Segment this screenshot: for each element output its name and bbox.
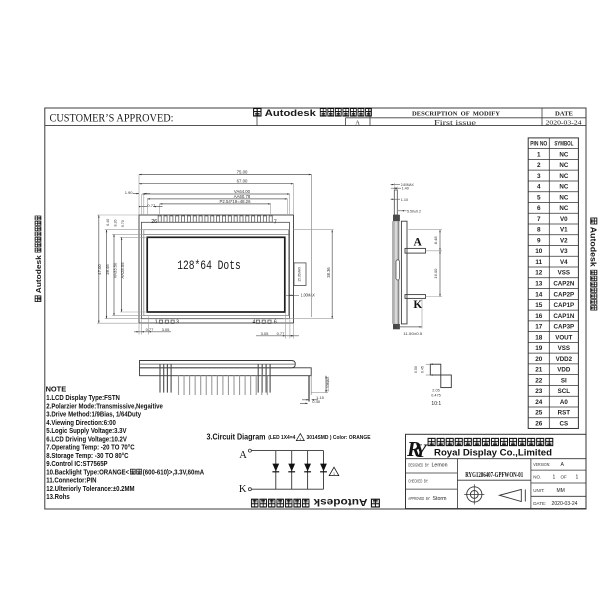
svg-text:26: 26: [535, 420, 543, 427]
svg-text:5: 5: [537, 194, 541, 201]
svg-text:SYMBOL: SYMBOL: [554, 141, 573, 148]
svg-text:7: 7: [274, 220, 277, 226]
svg-text:Autodesk: Autodesk: [313, 496, 367, 507]
svg-text:2020-03-24: 2020-03-24: [552, 501, 578, 507]
svg-text:67.00: 67.00: [237, 179, 248, 184]
svg-text:CAP2N: CAP2N: [553, 281, 575, 288]
svg-text:2020-03-24: 2020-03-24: [546, 120, 582, 126]
svg-text:VOUT: VOUT: [555, 334, 572, 341]
svg-text:1.LCD Display Type:FSTN: 1.LCD Display Type:FSTN: [46, 395, 120, 403]
svg-text:CUSTOMER’S APPROVED:: CUSTOMER’S APPROVED:: [50, 112, 174, 124]
svg-text:A: A: [239, 450, 247, 461]
svg-text:V0: V0: [560, 216, 568, 223]
svg-text:3.Drive Method:1/9Bias, 1/64Du: 3.Drive Method:1/9Bias, 1/64Duty: [46, 411, 141, 419]
svg-text:Autodesk: Autodesk: [34, 254, 43, 293]
svg-text:9: 9: [537, 237, 541, 244]
svg-text:47.00: 47.00: [97, 264, 102, 275]
svg-text:V4: V4: [560, 259, 568, 266]
svg-text:26: 26: [151, 219, 157, 225]
svg-text:NC: NC: [559, 205, 568, 212]
svg-text:3.05: 3.05: [162, 327, 171, 332]
svg-text:8.48: 8.48: [433, 236, 438, 245]
svg-text:15.35MAX: 15.35MAX: [297, 266, 301, 282]
svg-text:P2.54*19=48.26: P2.54*19=48.26: [220, 199, 252, 204]
svg-text:1: 1: [155, 320, 158, 326]
svg-text:38.36: 38.36: [326, 267, 331, 278]
svg-text:4: 4: [537, 184, 541, 191]
svg-text:128*64 Dots: 128*64 Dots: [177, 259, 241, 274]
svg-text:3: 3: [537, 173, 541, 180]
svg-text:1: 1: [537, 151, 541, 158]
svg-text:NC: NC: [559, 194, 568, 201]
svg-text:CHECKED BY:: CHECKED BY:: [408, 478, 428, 483]
svg-text:1.00MAX: 1.00MAX: [301, 293, 315, 298]
svg-text:3: 3: [176, 320, 179, 326]
svg-text:NC: NC: [559, 184, 568, 191]
svg-text:6.40: 6.40: [106, 219, 110, 226]
svg-text:(LED 1X4=4: (LED 1X4=4: [268, 435, 295, 441]
svg-text:UNIT:: UNIT:: [533, 488, 544, 493]
svg-text:0.77: 0.77: [147, 203, 156, 208]
svg-text:3.Circuit Diagram: 3.Circuit Diagram: [207, 433, 266, 442]
svg-text:2.05: 2.05: [432, 388, 439, 392]
svg-text:NOTE: NOTE: [46, 385, 67, 394]
svg-text:10.Backlight Type:ORANGE<: 10.Backlight Type:ORANGE<: [46, 469, 129, 477]
svg-text:First issue: First issue: [434, 119, 476, 127]
svg-text:18: 18: [535, 334, 543, 341]
svg-text:12: 12: [535, 270, 543, 277]
svg-text:11.50±0.5: 11.50±0.5: [403, 331, 423, 336]
svg-text:9.Control IC:ST7565P: 9.Control IC:ST7565P: [46, 461, 108, 469]
svg-text:NC: NC: [559, 151, 568, 158]
svg-text:1.90: 1.90: [125, 190, 134, 195]
svg-text:6.LCD Driving Voltage:10.2V: 6.LCD Driving Voltage:10.2V: [46, 436, 127, 444]
svg-text:0.77: 0.77: [277, 331, 286, 336]
svg-text:Storm: Storm: [433, 496, 447, 502]
svg-text:13: 13: [535, 281, 543, 288]
svg-text:0.50: 0.50: [414, 366, 418, 373]
svg-text:6: 6: [274, 320, 277, 326]
svg-text:22: 22: [535, 377, 543, 384]
svg-text:7: 7: [537, 216, 541, 223]
svg-text:39.46: 39.46: [105, 264, 110, 275]
svg-text:A: A: [355, 120, 360, 127]
svg-text:24: 24: [535, 399, 543, 406]
svg-text:VSS: VSS: [558, 345, 570, 352]
svg-text:8: 8: [537, 227, 541, 234]
svg-text:K: K: [239, 484, 247, 495]
svg-text:RST: RST: [558, 410, 571, 417]
svg-text:Autodesk: Autodesk: [589, 227, 598, 268]
svg-text:AA28.55: AA28.55: [120, 262, 125, 279]
svg-text:VDD2: VDD2: [556, 356, 573, 363]
svg-text:1.40: 1.40: [402, 187, 409, 191]
svg-text:SCL: SCL: [558, 388, 571, 395]
svg-text:VDD: VDD: [557, 367, 571, 374]
svg-text:CAP3P: CAP3P: [554, 324, 575, 331]
svg-text:8.26: 8.26: [113, 220, 117, 227]
svg-text:Royal Display Co.,Limited: Royal Display Co.,Limited: [434, 447, 552, 458]
svg-text:APPROVED BY:: APPROVED BY:: [408, 496, 430, 501]
svg-text:DATE: DATE: [555, 111, 573, 118]
svg-text:DESIGNED BY:: DESIGNED BY:: [408, 462, 429, 467]
svg-text:NC: NC: [559, 162, 568, 169]
svg-text:VA33.50: VA33.50: [112, 262, 117, 278]
svg-text:SI: SI: [561, 377, 567, 384]
svg-text:25: 25: [535, 410, 543, 417]
svg-text:14: 14: [535, 291, 543, 298]
svg-text:DESCRIPTION OF MODIFY: DESCRIPTION OF MODIFY: [412, 111, 501, 118]
svg-text:7.Operating Temp: -20 TO 70°C: 7.Operating Temp: -20 TO 70°C: [46, 443, 134, 452]
svg-text:3.05: 3.05: [261, 331, 270, 336]
svg-text:CAP1N: CAP1N: [553, 313, 575, 320]
svg-text:CAP1P: CAP1P: [554, 302, 575, 309]
svg-text:20: 20: [535, 356, 543, 363]
svg-text:MM: MM: [557, 488, 565, 494]
svg-text:K: K: [413, 299, 422, 311]
svg-text:12.Ulteriorly Tolerance:±0.2MM: 12.Ulteriorly Tolerance:±0.2MM: [46, 486, 135, 494]
svg-text:13.Rohs: 13.Rohs: [46, 494, 70, 502]
svg-text:2.Polarzier Mode:Transmissive,: 2.Polarzier Mode:Transmissive,Negaitive: [46, 403, 163, 411]
svg-text:8.Storage Temp: -30 TO 80°C: 8.Storage Temp: -30 TO 80°C: [46, 451, 128, 460]
svg-text:1: 1: [333, 472, 335, 476]
svg-text:10:1: 10:1: [431, 401, 441, 407]
svg-text:VERSION:: VERSION:: [533, 462, 550, 467]
svg-text:A: A: [561, 462, 565, 468]
svg-text:OF: OF: [561, 475, 568, 480]
svg-text:16.00: 16.00: [433, 268, 438, 279]
svg-text:2: 2: [537, 162, 541, 169]
svg-text:1: 1: [553, 475, 556, 481]
svg-text:5.50±0.2: 5.50±0.2: [407, 209, 421, 213]
svg-text:19: 19: [535, 345, 543, 352]
svg-text:CAP2P: CAP2P: [554, 291, 575, 298]
svg-text:V1: V1: [560, 227, 568, 234]
svg-text:16: 16: [535, 313, 543, 320]
svg-text:21: 21: [535, 367, 543, 374]
svg-text:17: 17: [535, 324, 543, 331]
svg-text:10: 10: [535, 248, 543, 255]
svg-text:RYG1286407-GPFWON-01: RYG1286407-GPFWON-01: [465, 470, 523, 479]
svg-text:4: 4: [253, 320, 256, 326]
svg-text:11.Connector:PIN: 11.Connector:PIN: [46, 477, 96, 485]
svg-text:PIN NO: PIN NO: [530, 141, 547, 148]
svg-text:0.475: 0.475: [431, 394, 441, 398]
svg-text:(600-610)>,3.3V,60mA: (600-610)>,3.3V,60mA: [143, 469, 204, 477]
svg-text:4.Viewing Direction:6:00: 4.Viewing Direction:6:00: [46, 420, 116, 428]
svg-text:11: 11: [535, 259, 542, 266]
svg-text:NC: NC: [559, 173, 568, 180]
svg-text:6: 6: [537, 205, 541, 212]
svg-text:V3: V3: [560, 248, 568, 255]
svg-text:VSS: VSS: [558, 270, 570, 277]
svg-text:Lemon: Lemon: [432, 463, 448, 469]
svg-text:15: 15: [535, 302, 543, 309]
svg-text:0.45: 0.45: [420, 366, 424, 373]
svg-text:3014SMD ) Color: ORANGE: 3014SMD ) Color: ORANGE: [307, 435, 371, 441]
svg-text:CS: CS: [560, 420, 569, 427]
svg-text:1.10: 1.10: [401, 198, 408, 202]
svg-text:V2: V2: [560, 237, 568, 244]
svg-text:A: A: [413, 237, 422, 249]
svg-text:0.77: 0.77: [146, 327, 155, 332]
svg-text:23: 23: [535, 388, 543, 395]
svg-text:DATE:: DATE:: [533, 501, 546, 506]
svg-text:NO.: NO.: [533, 475, 541, 480]
svg-text:Autodesk: Autodesk: [265, 107, 317, 118]
svg-text:A0: A0: [560, 399, 568, 406]
svg-text:9.70: 9.70: [121, 220, 125, 227]
svg-text:5.Logic Supply Voltage:3.3V: 5.Logic Supply Voltage:3.3V: [46, 428, 127, 436]
svg-text:75.00: 75.00: [237, 170, 248, 175]
svg-text:1: 1: [576, 475, 579, 481]
